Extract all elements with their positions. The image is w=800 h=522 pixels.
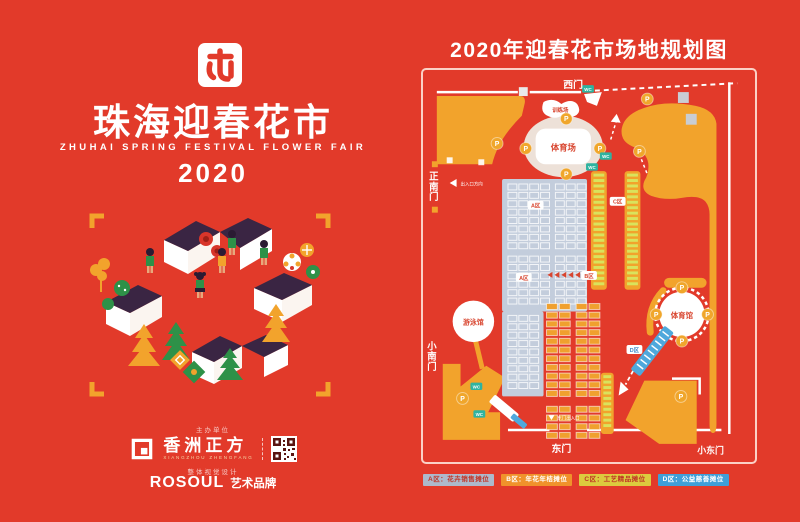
- svg-text:P: P: [564, 172, 569, 179]
- svg-text:WC: WC: [602, 154, 610, 159]
- legend-item: C区：工艺精品摊位: [579, 474, 650, 486]
- stall-cluster: [106, 285, 162, 336]
- svg-text:P: P: [637, 149, 642, 156]
- poster-subtitle: ZHUHAI SPRING FESTIVAL FLOWER FAIR: [35, 142, 391, 153]
- site-map-frame: 体育场 训练场 游泳馆 体育馆: [421, 68, 757, 464]
- zone-a-badge: A区: [531, 202, 541, 210]
- entrance-funnel: [584, 92, 602, 106]
- zone-b-badge: B区: [584, 272, 594, 280]
- natatorium-label: 游泳馆: [463, 317, 484, 326]
- rosoul-brand-suffix: 艺术品牌: [230, 475, 276, 491]
- qr-code: [271, 436, 297, 462]
- svg-text:P: P: [680, 339, 685, 346]
- svg-text:P: P: [598, 146, 603, 153]
- zone-d-badge: D区: [630, 346, 640, 354]
- svg-text:P: P: [654, 312, 659, 319]
- divider: [262, 438, 263, 460]
- legend-item: A区：花卉销售摊位: [423, 474, 494, 486]
- gate-small-south-label: 小南门: [426, 340, 438, 372]
- zone-c-badge: C区: [613, 198, 623, 206]
- organizer-brand-row: 香洲正方 XIANGZHOU ZHENGFANG: [35, 436, 391, 462]
- zhengfang-logo-icon: [129, 436, 155, 462]
- legend-item: D区：公益慈善摊位: [658, 474, 729, 486]
- legend-item: B区：年花年桔摊位: [501, 474, 572, 486]
- natatorium-area: 游泳馆: [453, 301, 495, 343]
- svg-text:P: P: [523, 146, 528, 153]
- brand-name-en: XIANGZHOU ZHENGFANG: [163, 456, 253, 461]
- svg-text:WC: WC: [588, 165, 596, 170]
- flower-fair-logo-icon: [197, 42, 243, 88]
- svg-text:WC: WC: [584, 87, 592, 92]
- svg-text:WC: WC: [473, 384, 481, 389]
- gymnasium-label: 体育馆: [671, 310, 694, 320]
- zone-a2-badge: A区: [519, 274, 529, 282]
- svg-text:P: P: [564, 116, 569, 123]
- wayfinding-west-label: 出入口方向: [461, 180, 484, 187]
- svg-text:P: P: [705, 312, 710, 319]
- gate-small-east-label: 小东门: [697, 445, 724, 456]
- site-map: 体育场 训练场 游泳馆 体育馆: [423, 70, 755, 462]
- wayfinding-east-label: 东门出入口: [557, 415, 579, 422]
- brand-name-cn: 香洲正方: [163, 437, 253, 454]
- flower-fair-poster: 珠海迎春花市 ZHUHAI SPRING FESTIVAL FLOWER FAI…: [0, 0, 800, 522]
- poster-year: 2020: [35, 158, 391, 189]
- training-ground-area: 训练场: [542, 100, 579, 118]
- poster-title: 珠海迎春花市: [35, 92, 391, 146]
- gate-east-label: 东门: [551, 442, 571, 455]
- svg-text:P: P: [460, 396, 465, 403]
- svg-text:P: P: [679, 394, 684, 401]
- flower-icon: [283, 243, 320, 279]
- svg-text:P: P: [645, 96, 650, 103]
- gate-main-south-label: 正南门: [428, 171, 439, 202]
- wayfinding-west: 出入口方向: [450, 179, 484, 187]
- building-block: [686, 114, 697, 125]
- rosoul-brand: ROSOUL: [150, 474, 224, 492]
- arrowhead: [611, 114, 621, 123]
- building-block: [678, 92, 689, 103]
- organizer-label: 主办单位: [35, 424, 391, 434]
- natatorium-stem: [475, 340, 482, 369]
- gate-west-label: 西门: [563, 78, 583, 91]
- stadium-label: 体育场: [551, 142, 577, 152]
- market-illustration: [80, 206, 340, 406]
- gate-marker: [519, 87, 528, 96]
- design-brand-row: ROSOUL 艺术品牌: [35, 474, 391, 492]
- svg-text:WC: WC: [476, 412, 484, 417]
- svg-text:P: P: [495, 141, 500, 148]
- map-legend: A区：花卉销售摊位 B区：年花年桔摊位 C区：工艺精品摊位 D区：公益慈善摊位: [423, 474, 759, 486]
- map-title: 2020年迎春花市场地规划图: [421, 34, 757, 64]
- svg-text:P: P: [680, 285, 685, 292]
